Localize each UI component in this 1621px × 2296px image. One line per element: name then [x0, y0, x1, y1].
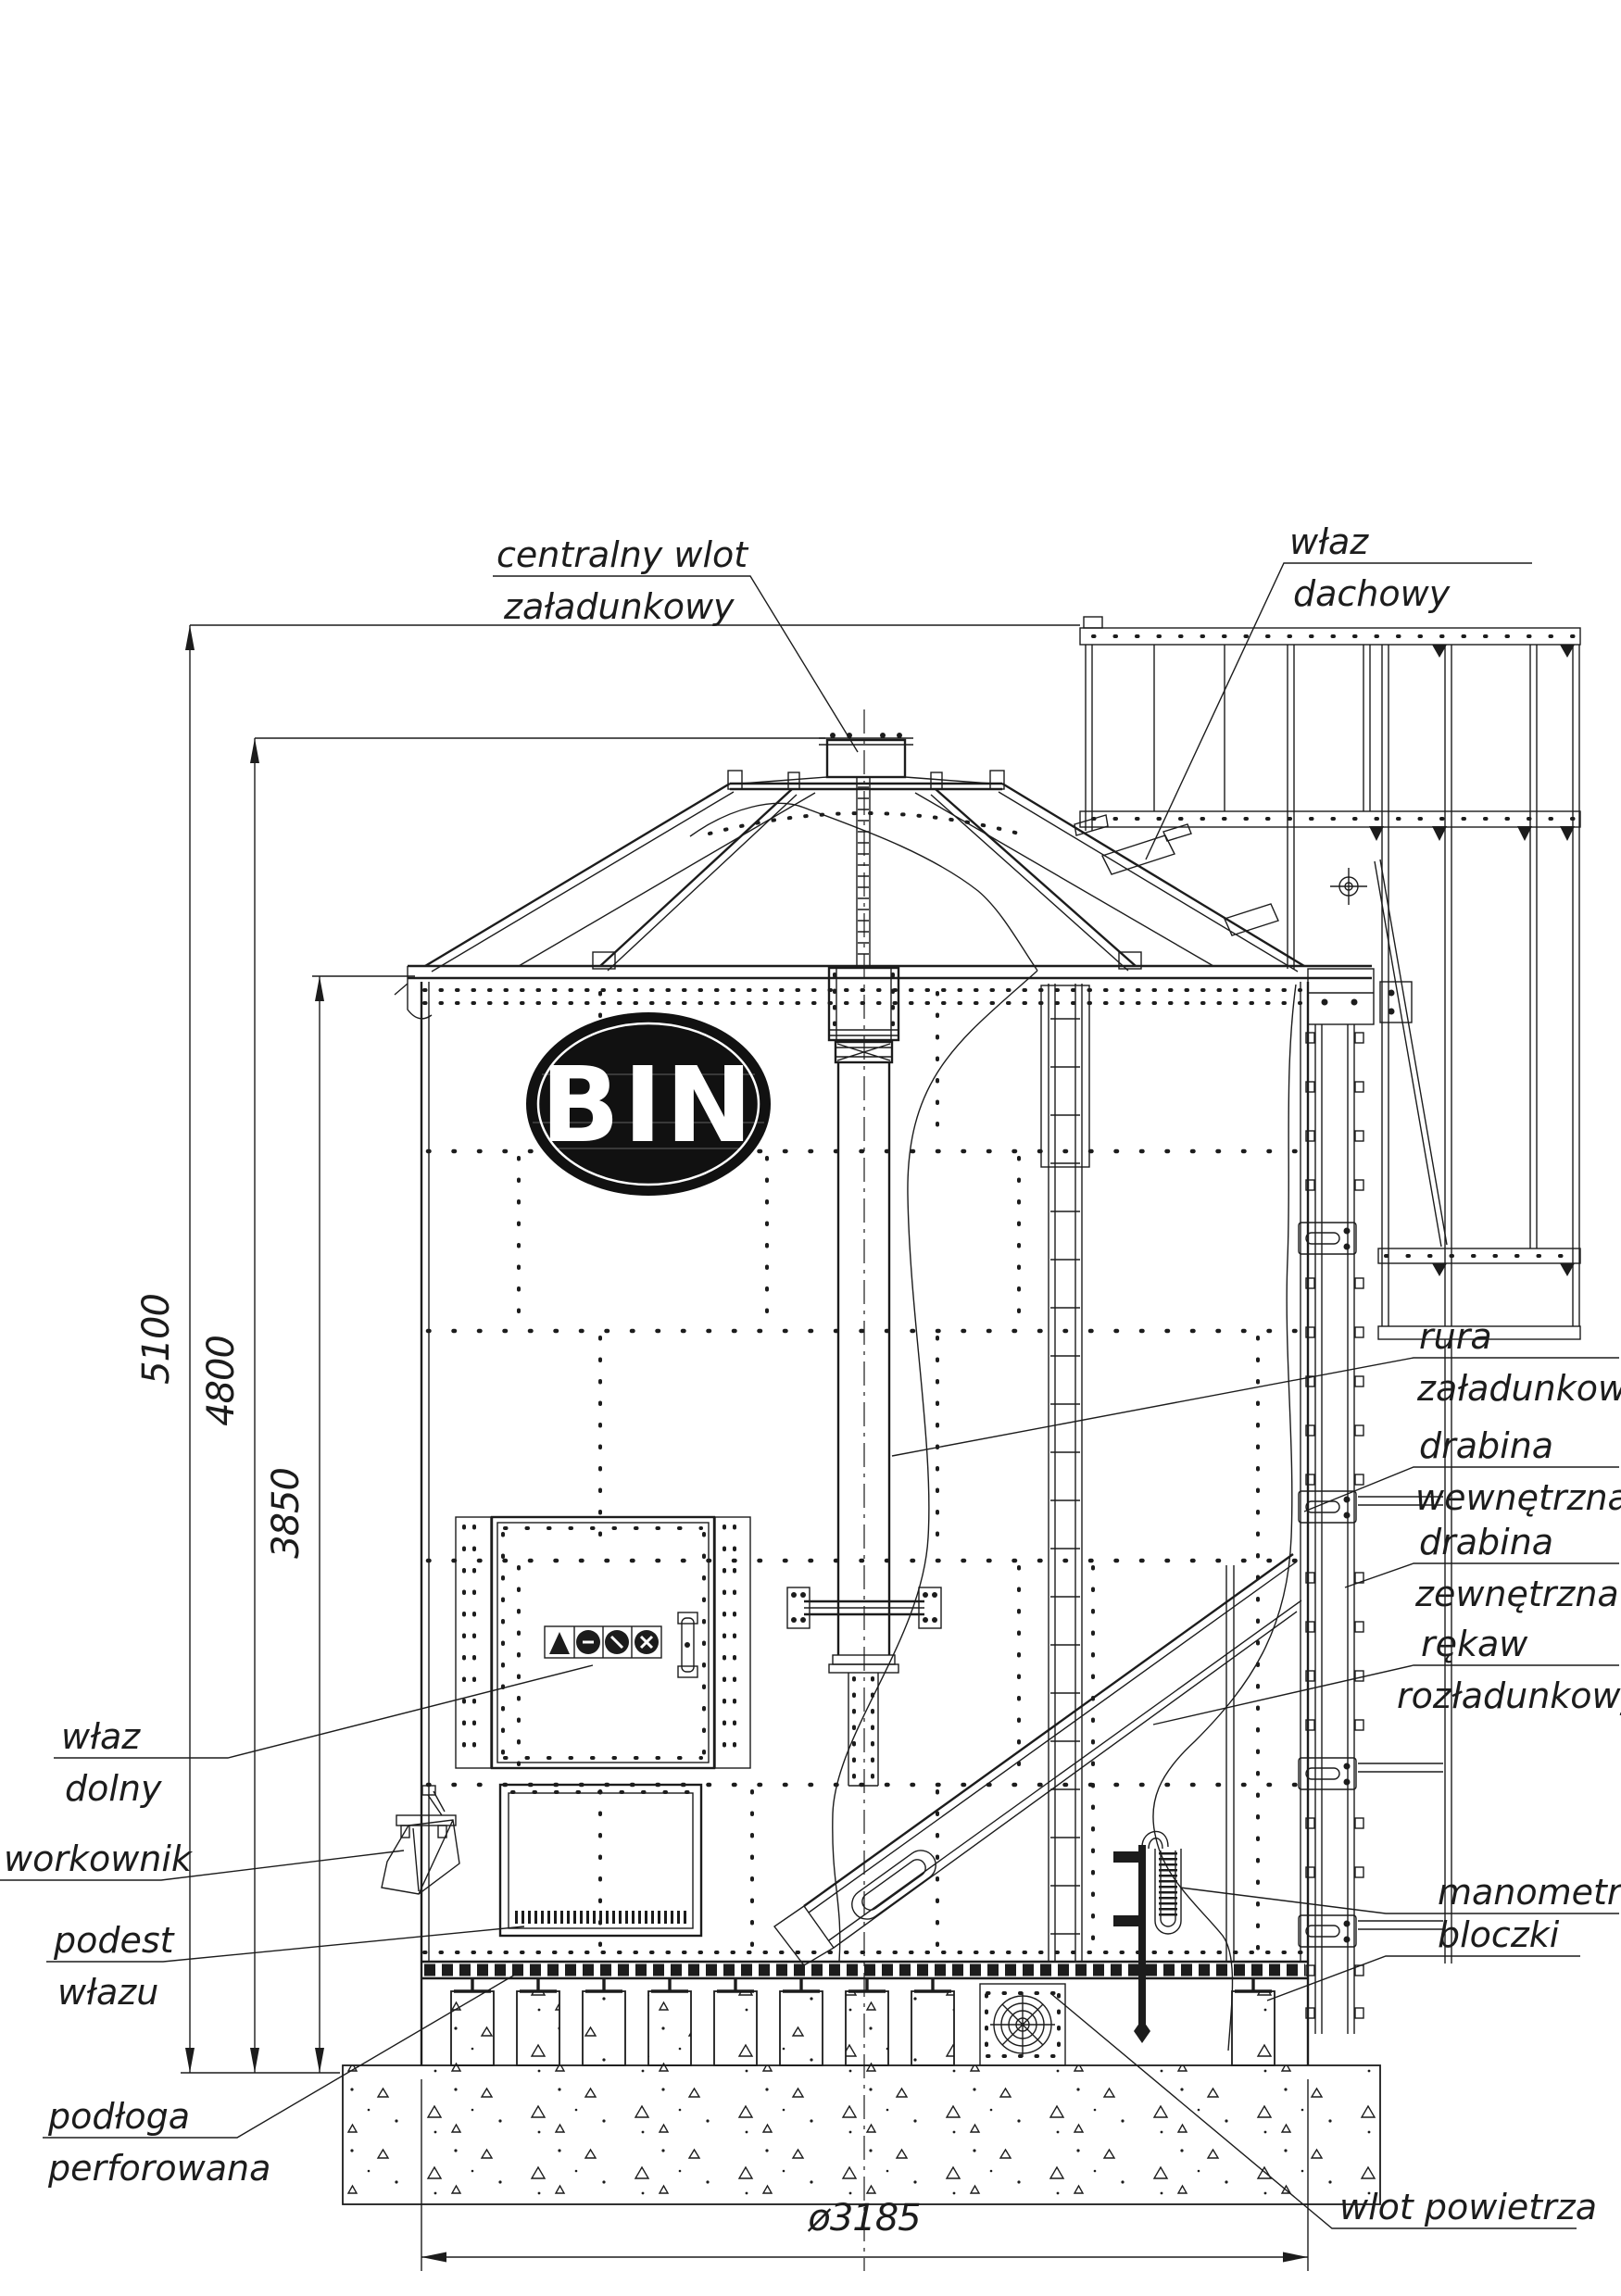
label-text: drabina [1419, 1425, 1553, 1466]
label-drabina-zewnetrzna: drabina zewnętrzna [1345, 1522, 1619, 1614]
label-text: perforowana [47, 2148, 270, 2189]
label-text: zewnętrzna [1414, 1574, 1619, 1614]
center-mark-icon [1330, 868, 1367, 905]
label-bloczki: bloczki [1267, 1914, 1580, 2001]
label-text: rozładunkowy [1397, 1675, 1621, 1716]
label-wlaz-dachowy: właz dachowy [1146, 521, 1532, 859]
label-drabina-wewnetrzna: drabina wewnętrzna [1304, 1425, 1621, 1518]
label-text: rękaw [1421, 1624, 1528, 1664]
silo-technical-drawing: BIN 5100 4800 3850 ø3185 centralny wlot … [0, 0, 1621, 2296]
label-text: wlot powietrza [1339, 2187, 1597, 2227]
warning-label-strip [545, 1626, 661, 1658]
label-text: włazu [57, 1972, 158, 2013]
label-text: właz [61, 1716, 141, 1757]
label-text: załadunkowa [1416, 1368, 1621, 1409]
label-workownik: workownik [0, 1838, 404, 1880]
air-inlet [980, 1984, 1065, 2065]
internal-ladder [1041, 984, 1089, 1962]
roof-hatch [1102, 824, 1278, 935]
warning-triangle-icon [549, 1632, 570, 1654]
central-loading-inlet [741, 733, 991, 784]
bin-logo-text: BIN [541, 1046, 757, 1166]
door-handle [678, 1612, 697, 1677]
label-text: dolny [65, 1768, 162, 1809]
label-text: bloczki [1438, 1914, 1560, 1955]
dimension-inlet-height: 4800 [200, 1336, 243, 1426]
callout-labels: centralny wlot załadunkowy właz dachowy … [0, 521, 1621, 2228]
label-manometr: manometr [1180, 1872, 1621, 1913]
label-text: manometr [1438, 1872, 1621, 1913]
label-text: wewnętrzna [1415, 1477, 1621, 1518]
bin-logo: BIN [526, 1012, 771, 1196]
label-text: załadunkowy [503, 586, 735, 627]
foundation-slab [343, 1978, 1380, 2204]
label-text: rura [1419, 1316, 1492, 1357]
label-text: centralny wlot [496, 534, 749, 575]
fan-grille-icon [990, 1992, 1055, 2057]
label-text: właz [1289, 521, 1369, 562]
dimension-eave-height: 3850 [265, 1468, 308, 1559]
lower-hatch-door [456, 1517, 750, 1768]
manometer [1113, 1831, 1181, 2043]
hatch-platform [500, 1785, 701, 1936]
dimension-diameter: ø3185 [807, 2197, 920, 2240]
label-wlaz-dolny: właz dolny [54, 1665, 593, 1809]
label-text: drabina [1419, 1522, 1553, 1562]
counterweight [1134, 2019, 1150, 2043]
roof-cone [395, 733, 1374, 1024]
label-text: podłoga [47, 2096, 190, 2137]
dimension-total-height: 5100 [135, 1294, 178, 1385]
label-text: dachowy [1293, 573, 1451, 614]
drawing-page: BIN 5100 4800 3850 ø3185 centralny wlot … [0, 0, 1621, 2296]
label-text: podest [53, 1920, 176, 1961]
label-centralny-wlot-zaladunkowy: centralny wlot załadunkowy [493, 534, 858, 752]
label-text: workownik [4, 1838, 194, 1879]
